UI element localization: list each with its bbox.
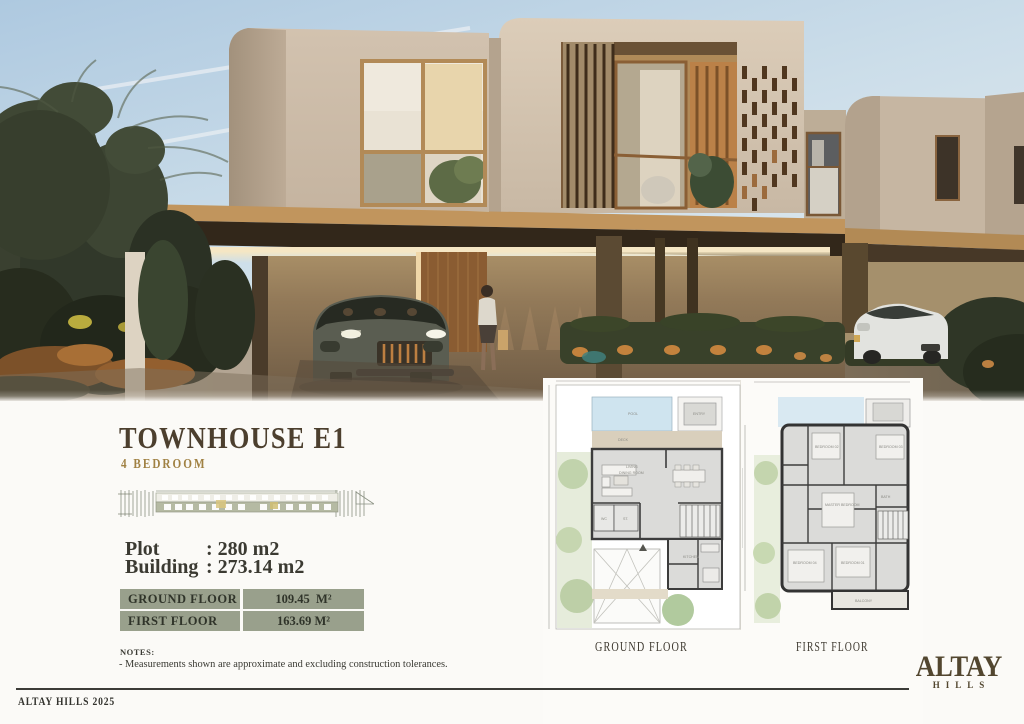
svg-text:POOL: POOL: [628, 412, 638, 416]
svg-text:BALCONY: BALCONY: [855, 599, 873, 603]
svg-text:DINING ROOM: DINING ROOM: [619, 471, 644, 475]
svg-text:BEDROOM 03: BEDROOM 03: [879, 445, 903, 449]
svg-text:BEDROOM 04: BEDROOM 04: [793, 561, 817, 565]
svg-text:BEDROOM 02: BEDROOM 02: [815, 445, 839, 449]
svg-text:BATH: BATH: [881, 495, 891, 499]
svg-text:KITCHEN: KITCHEN: [683, 555, 699, 559]
svg-text:ENTRY: ENTRY: [693, 412, 706, 416]
svg-text:BEDROOM 01: BEDROOM 01: [841, 561, 865, 565]
svg-text:LIVING: LIVING: [626, 465, 638, 469]
svg-text:WC: WC: [601, 517, 607, 521]
svg-text:MASTER BEDROOM: MASTER BEDROOM: [825, 503, 860, 507]
svg-text:DECK: DECK: [618, 438, 629, 442]
svg-text:ST.: ST.: [623, 517, 628, 521]
